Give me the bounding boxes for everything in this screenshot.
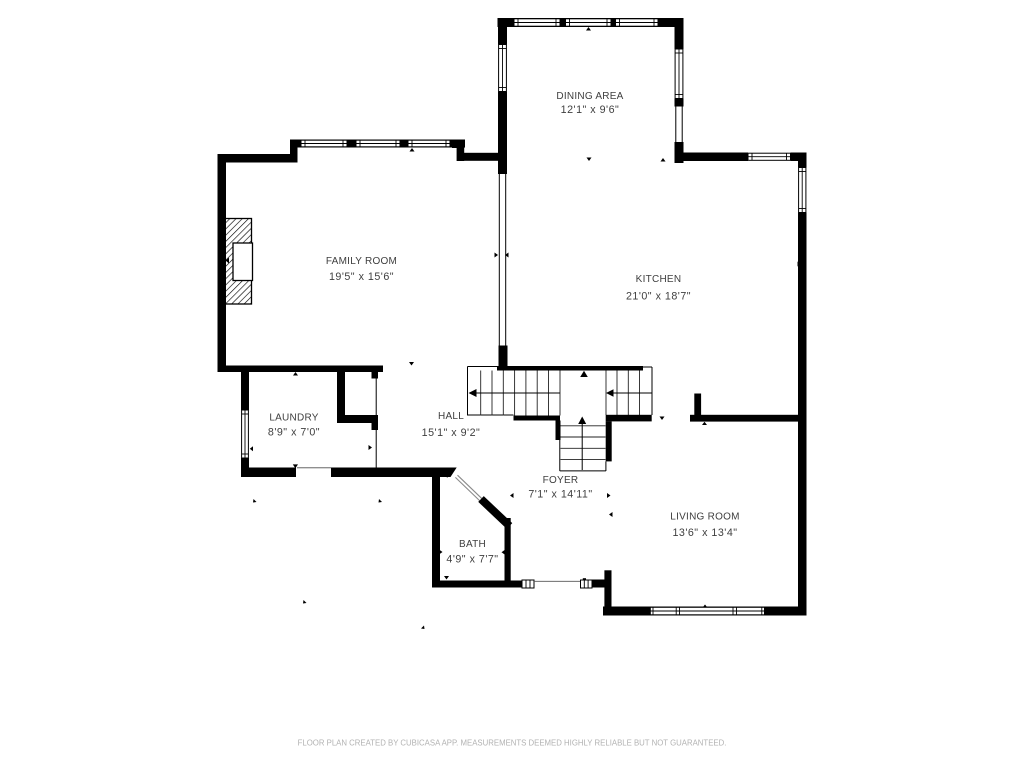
svg-text:LAUNDRY: LAUNDRY — [269, 412, 318, 423]
svg-text:7'1" x 14'11": 7'1" x 14'11" — [528, 488, 592, 500]
svg-text:LIVING ROOM: LIVING ROOM — [670, 511, 739, 522]
svg-text:12'1" x 9'6": 12'1" x 9'6" — [561, 104, 620, 116]
svg-text:DINING AREA: DINING AREA — [556, 91, 623, 102]
svg-text:FOYER: FOYER — [543, 475, 579, 486]
svg-text:13'6" x 13'4": 13'6" x 13'4" — [672, 527, 737, 539]
svg-text:15'1" x 9'2": 15'1" x 9'2" — [422, 427, 481, 439]
svg-text:8'9" x 7'0": 8'9" x 7'0" — [268, 427, 320, 439]
svg-text:21'0" x 18'7": 21'0" x 18'7" — [626, 290, 691, 302]
svg-text:4'9" x 7'7": 4'9" x 7'7" — [446, 553, 498, 565]
svg-text:HALL: HALL — [438, 411, 464, 422]
svg-text:19'5" x 15'6": 19'5" x 15'6" — [329, 271, 394, 283]
svg-text:BATH: BATH — [459, 539, 486, 550]
svg-text:KITCHEN: KITCHEN — [636, 274, 682, 285]
svg-text:FAMILY ROOM: FAMILY ROOM — [326, 256, 397, 267]
svg-text:FLOOR PLAN CREATED BY CUBICASA: FLOOR PLAN CREATED BY CUBICASA APP. MEAS… — [298, 739, 727, 748]
